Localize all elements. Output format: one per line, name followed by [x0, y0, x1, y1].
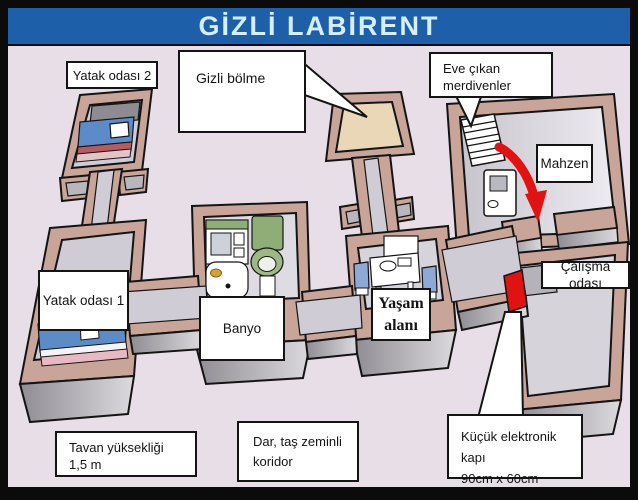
bed2-pillow-icon [110, 122, 129, 138]
label-bedroom1: Yatak odası 1 [38, 270, 129, 331]
title-banner: GİZLİ LABİRENT [8, 8, 630, 46]
label-door-note: Küçük elektronik kapı 90cm x 60cm [447, 414, 583, 479]
label-corridor-note: Dar, taş zeminli koridor [237, 421, 359, 482]
label-secret-compartment: Gizli bölme [178, 50, 306, 133]
label-stairs-note: Eve çıkan merdivenler [429, 52, 553, 98]
toilet-seat-icon [258, 257, 276, 272]
corridor-left-stub-a-floor [66, 181, 88, 196]
electronic-door [504, 270, 527, 312]
label-bathroom: Banyo [199, 296, 285, 361]
label-study: Çalışma odası [541, 261, 630, 289]
label-bedroom2: Yatak odası 2 [66, 61, 158, 89]
dish-icon [380, 261, 396, 271]
tray-icon [398, 258, 411, 266]
page-title: GİZLİ LABİRENT [199, 11, 440, 42]
label-living-area: Yaşam alanı [371, 288, 431, 341]
vanity-top-strip [206, 220, 248, 229]
cabinet-drawer-icon [234, 248, 244, 257]
corridor-west [122, 276, 208, 354]
door-label-pointer [478, 312, 523, 418]
label-cellar: Mahzen [536, 144, 593, 183]
toilet-tank-icon [252, 216, 283, 250]
chair-left-seat [356, 288, 368, 295]
soap-icon [211, 269, 222, 277]
corridor-mid [296, 286, 362, 359]
cabinet-door-icon [234, 233, 244, 245]
fridge-panel [490, 176, 507, 191]
drain-icon [226, 284, 231, 289]
chair-left-icon [354, 262, 369, 290]
corridor-west-floor [122, 286, 208, 324]
sink-icon [206, 262, 248, 298]
secret-labyrinth-diagram: GİZLİ LABİRENT [0, 0, 638, 500]
left-wing [20, 89, 152, 422]
mirror-icon [211, 233, 231, 255]
label-ceiling-note: Tavan yüksekliği 1,5 m [55, 431, 197, 477]
corridor-right-stub-a-floor [124, 175, 144, 190]
left-wing-base [20, 376, 134, 422]
toilet-base-icon [260, 276, 275, 296]
corridor-mid-floor [296, 295, 362, 335]
fridge-handle [488, 201, 498, 208]
